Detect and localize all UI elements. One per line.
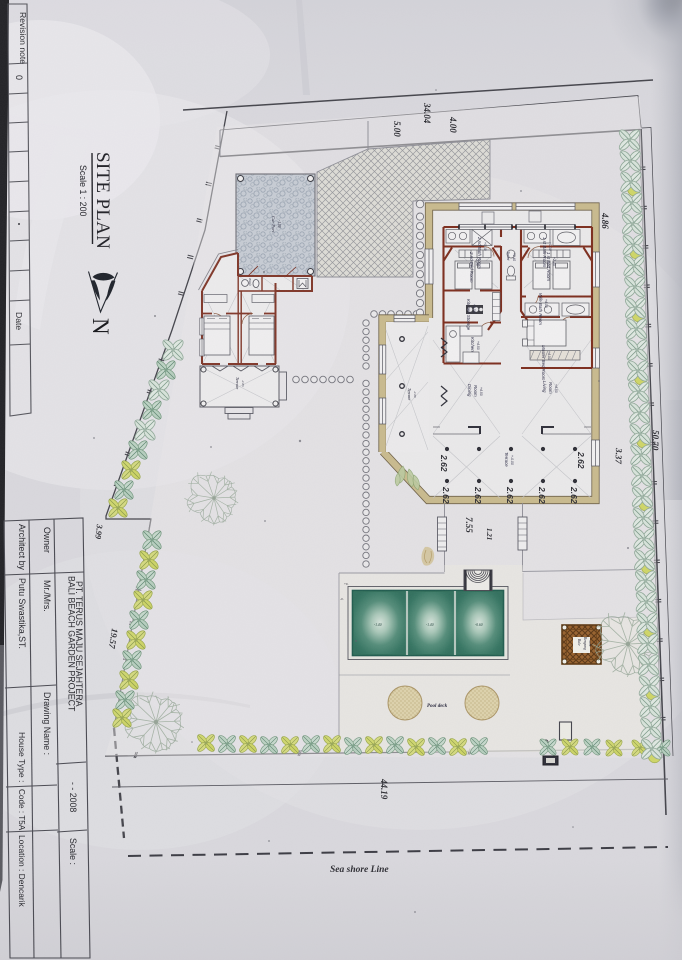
- svg-text:Date: Date: [14, 312, 24, 330]
- svg-text:2.62: 2.62: [576, 451, 586, 469]
- svg-text:+4.50: +4.50: [476, 341, 480, 350]
- svg-text:Dining: Dining: [467, 384, 472, 397]
- svg-text:Kitchen: Kitchen: [470, 337, 475, 352]
- svg-text:Revision note: Revision note: [18, 12, 28, 64]
- svg-text:+4.50: +4.50: [479, 387, 483, 396]
- svg-text:Scale :: Scale :: [68, 838, 78, 865]
- svg-text:Pool deck: Pool deck: [427, 704, 448, 709]
- svg-text:-0.60: -0.60: [475, 623, 483, 627]
- svg-text:5.00: 5.00: [392, 121, 402, 137]
- svg-text:Location : Dencarik: Location : Dencarik: [17, 835, 27, 908]
- svg-text:2.62: 2.62: [473, 486, 483, 504]
- svg-text:Bengong: Bengong: [583, 637, 587, 650]
- svg-text:Scale 1 : 200: Scale 1 : 200: [78, 165, 88, 216]
- svg-text:Owner: Owner: [42, 527, 52, 553]
- svg-text:Living: Living: [542, 381, 547, 393]
- svg-text:-1.00: -1.00: [413, 391, 417, 398]
- svg-text:PT. TERUS MAJU SEJAHTERA: PT. TERUS MAJU SEJAHTERA: [74, 581, 84, 707]
- svg-text:N: N: [88, 318, 113, 335]
- svg-text:+2.40: +2.40: [475, 257, 479, 266]
- svg-text:Sea shore Line: Sea shore Line: [330, 865, 389, 875]
- svg-text:Terrace: Terrace: [407, 388, 412, 401]
- svg-text:4.00: 4.00: [448, 116, 458, 133]
- svg-text:3.99: 3.99: [93, 523, 105, 541]
- svg-text:Toilet: Toilet: [248, 278, 252, 287]
- svg-text:+0.: +0.: [344, 582, 349, 586]
- svg-text:1 st Bed Room: 1 st Bed Room: [546, 252, 551, 281]
- svg-text:Drawing Name :: Drawing Name :: [42, 692, 52, 755]
- svg-text:0: 0: [14, 75, 24, 80]
- svg-text:2.62: 2.62: [569, 486, 579, 504]
- svg-text:3.37: 3.37: [613, 447, 624, 465]
- svg-text:- - 2008: - - 2008: [68, 782, 78, 812]
- svg-text:2.62: 2.62: [505, 486, 515, 504]
- svg-text:-0.20: -0.20: [588, 640, 592, 647]
- svg-text:Master Bed Room: Master Bed Room: [541, 345, 546, 381]
- svg-text:-1.40: -1.40: [374, 623, 382, 627]
- svg-text:50.70: 50.70: [650, 430, 661, 451]
- svg-text:-1.05: -1.05: [241, 380, 245, 387]
- svg-text:-1.40: -1.40: [426, 623, 434, 627]
- svg-text:7.55: 7.55: [464, 517, 474, 533]
- svg-text:Architect by: Architect by: [17, 524, 27, 571]
- svg-text:4.86: 4.86: [600, 212, 610, 229]
- svg-text:2.62: 2.62: [537, 486, 547, 504]
- svg-text:2.62: 2.62: [439, 454, 449, 472]
- svg-text:Toilet: Toilet: [506, 251, 511, 261]
- svg-text:+4.50: +4.50: [554, 384, 558, 393]
- svg-text:34.04: 34.04: [422, 102, 432, 124]
- svg-text:44.19: 44.19: [379, 778, 389, 800]
- svg-text:Putu Swastika,ST.: Putu Swastika,ST.: [17, 578, 27, 649]
- svg-text:+4.00: +4.00: [472, 304, 476, 313]
- svg-text:2.62: 2.62: [441, 486, 451, 504]
- svg-text:+4.00: +4.00: [547, 351, 551, 360]
- svg-text:+2.40: +2.40: [552, 257, 556, 266]
- svg-text:-0.: -0.: [340, 597, 344, 601]
- svg-text:-1.00: -1.00: [277, 220, 281, 228]
- svg-text:+0.00: +0.00: [548, 242, 552, 251]
- svg-text:Bale: Bale: [577, 639, 581, 646]
- svg-text:Terrace: Terrace: [504, 452, 509, 467]
- svg-text:1.21: 1.21: [485, 528, 493, 540]
- svg-text:Mr./Mrs.: Mr./Mrs.: [42, 580, 52, 612]
- svg-text:SITE PLAN: SITE PLAN: [92, 152, 113, 249]
- svg-text:Room: Room: [548, 382, 553, 394]
- svg-text:Room: Room: [473, 385, 478, 397]
- svg-text:Code : T5A: Code : T5A: [17, 789, 26, 831]
- svg-text:+0.00: +0.00: [483, 242, 487, 251]
- svg-text:2 nd Bed Room: 2 nd Bed Room: [469, 251, 474, 283]
- svg-text:+2.40: +2.40: [512, 253, 516, 261]
- svg-text:Terrace: Terrace: [235, 377, 240, 390]
- svg-text:+4.00: +4.00: [544, 299, 548, 308]
- svg-text:Wife Bath Room: Wife Bath Room: [538, 293, 543, 325]
- svg-text:Kitchen Storage: Kitchen Storage: [466, 299, 471, 331]
- svg-text:House Type :: House Type :: [17, 732, 27, 782]
- svg-text:Car Port: Car Port: [271, 216, 276, 233]
- svg-text:+-0.00: +-0.00: [510, 455, 514, 465]
